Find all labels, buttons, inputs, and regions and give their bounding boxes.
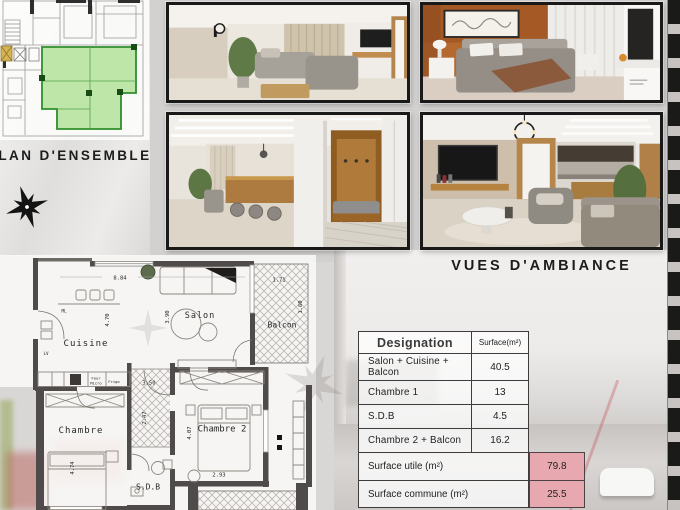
dim-chambre1-h: 4.74 xyxy=(70,461,76,475)
summary-value-highlighted: 79.8 xyxy=(529,452,585,481)
sofa xyxy=(581,197,660,247)
dim-chambre2-h: 4.07 xyxy=(187,426,193,439)
bed xyxy=(456,39,575,93)
tiled-entry-floor xyxy=(325,222,407,247)
presentation-board: Plan D'ensemble xyxy=(0,0,680,510)
photo-bedroom xyxy=(420,2,663,103)
label-frigo: Frigo xyxy=(108,379,120,384)
surface-table: Designation Surface(m²) Salon + Cuisine … xyxy=(358,331,529,508)
photo-kitchen-entry xyxy=(166,112,410,250)
table-summary-row: Surface commune (m²) 25.5 xyxy=(359,481,528,508)
background-window-column xyxy=(667,0,680,510)
dim-hall-h: 2.47 xyxy=(142,411,148,424)
summary-label: Surface utile (m²) xyxy=(359,453,528,480)
row-value: 40.5 xyxy=(472,354,528,380)
tv xyxy=(439,146,498,180)
row-label: S.D.B xyxy=(359,405,472,428)
coffee-table xyxy=(261,84,310,98)
overview-floor-plan xyxy=(0,0,150,142)
nightstand-2 xyxy=(577,54,598,70)
dim-width-total: 8.84 xyxy=(113,276,127,282)
dim-chambre2-w: 2.93 xyxy=(212,473,225,479)
room-label-balcon: Balcon xyxy=(268,321,297,330)
table-row: Salon + Cuisine + Balcon 40.5 xyxy=(359,354,528,381)
table-row: S.D.B 4.5 xyxy=(359,405,528,429)
compass-rose-icon xyxy=(4,184,50,230)
room-label-cuisine: Cuisine xyxy=(64,339,109,349)
column-header-surface: Surface(m²) xyxy=(472,332,528,353)
table-row: Chambre 1 13 xyxy=(359,381,528,405)
pillar xyxy=(294,121,327,247)
label-micro: Micro xyxy=(90,381,102,386)
table-header-row: Designation Surface(m²) xyxy=(359,332,528,354)
row-label: Salon + Cuisine + Balcon xyxy=(359,354,472,380)
wall-art xyxy=(444,11,518,37)
row-value: 13 xyxy=(472,381,528,404)
dim-balcon-h: 1.60 xyxy=(298,300,304,313)
room-label-chambre1: Chambre xyxy=(59,426,104,436)
entry-bench-nook xyxy=(331,130,382,222)
overview-duct-hatch xyxy=(1,46,12,61)
row-value: 4.5 xyxy=(472,405,528,428)
room-label-chambre2: Chambre 2 xyxy=(198,425,247,435)
background-white-car xyxy=(600,468,654,496)
tv xyxy=(360,29,391,47)
row-label: Chambre 1 xyxy=(359,381,472,404)
room-label-sdb: S.D.B xyxy=(136,483,160,492)
ambiance-section-title: Vues D'ambiance xyxy=(420,258,663,274)
photo-salon xyxy=(166,2,410,103)
dim-kitchen-h: 4.70 xyxy=(105,313,111,326)
label-ml: ML xyxy=(61,309,67,314)
table-summary-row: Surface utile (m²) 79.8 xyxy=(359,453,528,481)
armchair xyxy=(528,188,573,224)
photo-tv-lounge xyxy=(420,112,663,250)
room-label-salon: Salon xyxy=(185,311,216,321)
dining-chair xyxy=(204,190,224,213)
summary-label: Surface commune (m²) xyxy=(359,481,528,507)
star-watermark-icon xyxy=(282,352,346,416)
summary-value-highlighted: 25.5 xyxy=(529,480,585,508)
label-lv: LV xyxy=(43,351,49,356)
overview-section-title: Plan D'ensemble xyxy=(0,148,151,163)
table-row: Chambre 2 + Balcon 16.2 xyxy=(359,429,528,453)
dim-balcon-w: 1.71 xyxy=(272,278,285,284)
dim-hall-w: 3.50 xyxy=(142,381,155,387)
column-header-designation: Designation xyxy=(359,332,472,353)
star-watermark-icon xyxy=(128,308,168,348)
row-label: Chambre 2 + Balcon xyxy=(359,429,472,452)
row-value: 16.2 xyxy=(472,429,528,452)
